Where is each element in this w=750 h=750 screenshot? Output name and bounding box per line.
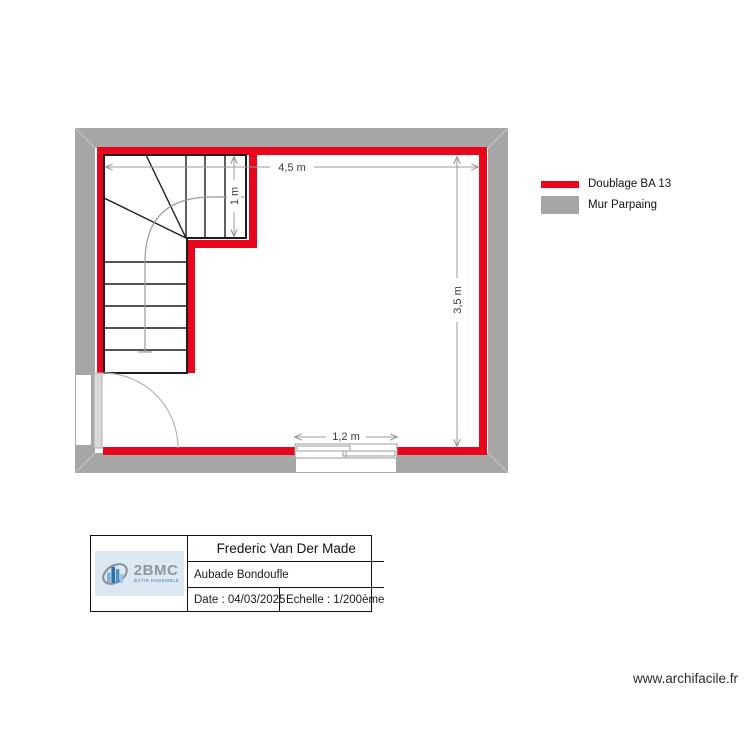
doublage-bottom-left	[103, 447, 295, 455]
floor-plan: 4,5 m 1 m 3,5 m 1,2 m	[0, 0, 750, 750]
title-block-fields: Frederic Van Der Made Aubade Bondoufle D…	[188, 536, 384, 611]
logo-tagline-text: BÂTIR ENSEMBLE	[134, 579, 179, 584]
doublage-label: Doublage BA 13	[588, 178, 671, 190]
company-logo: 2BMC BÂTIR ENSEMBLE	[95, 551, 184, 596]
2bmc-logo-icon	[99, 557, 131, 591]
watermark: www.archifacile.fr	[633, 671, 738, 686]
legend-item-doublage: Doublage BA 13	[541, 178, 741, 190]
doublage-stair-right	[249, 155, 257, 248]
doublage-right	[479, 147, 487, 455]
door-swing-arc	[103, 373, 178, 448]
mur-swatch	[541, 196, 579, 214]
dimension-top-label: 4,5 m	[278, 162, 306, 174]
doublage-top	[97, 147, 487, 155]
dimension-stair-width-label: 1 m	[229, 187, 241, 205]
client-name: Frederic Van Der Made	[188, 536, 384, 562]
title-block-logo-cell: 2BMC BÂTIR ENSEMBLE	[91, 536, 188, 611]
doublage-stair-under	[187, 240, 257, 248]
plan-date: Date : 04/03/2025	[188, 588, 280, 611]
dimension-right-label: 3,5 m	[452, 286, 464, 314]
window	[295, 444, 397, 458]
mur-label: Mur Parpaing	[588, 199, 657, 211]
door-wall-opening	[76, 375, 91, 445]
door-leaf	[94, 373, 102, 448]
plan-scale: Echelle : 1/200ème	[280, 588, 384, 611]
staircase	[104, 155, 246, 373]
doublage-bottom-right	[397, 447, 479, 455]
doublage-swatch	[541, 181, 579, 188]
door	[94, 373, 178, 448]
project-name: Aubade Bondoufle	[188, 562, 384, 588]
title-block: 2BMC BÂTIR ENSEMBLE Frederic Van Der Mad…	[90, 535, 372, 612]
logo-brand-text: 2BMC	[134, 563, 179, 578]
doublage-stair-side	[187, 240, 195, 373]
dimension-window: 1,2 m	[295, 429, 397, 443]
legend-item-mur: Mur Parpaing	[541, 196, 741, 214]
legend: Doublage BA 13 Mur Parpaing	[541, 178, 741, 220]
dimension-window-label: 1,2 m	[332, 431, 360, 443]
dimension-right: 3,5 m	[449, 157, 464, 446]
title-block-bottom-row: Date : 04/03/2025 Echelle : 1/200ème	[188, 588, 384, 611]
